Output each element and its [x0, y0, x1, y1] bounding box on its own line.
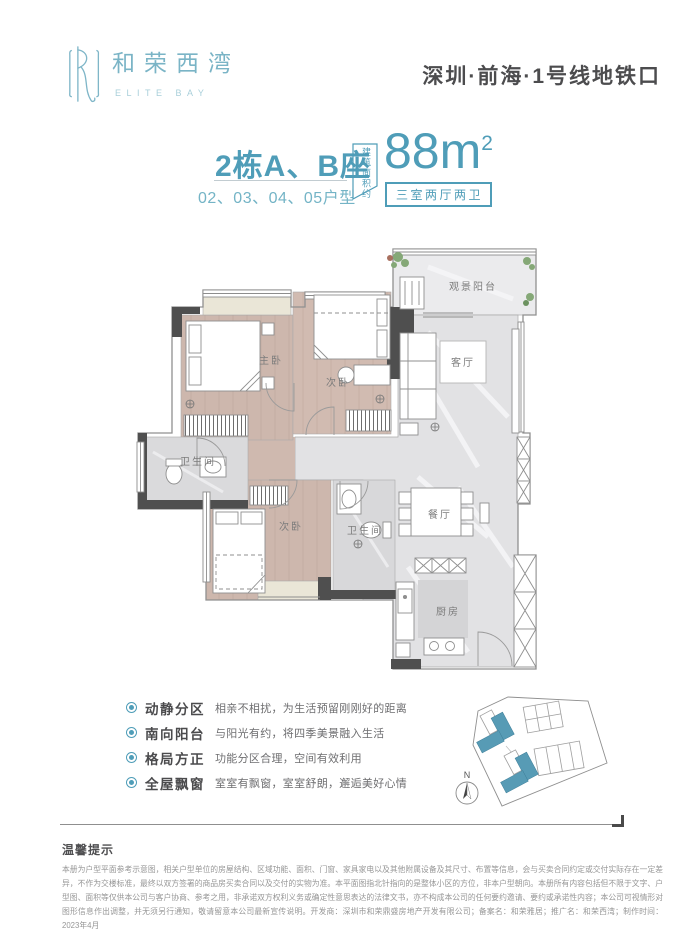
compass-icon — [456, 782, 478, 804]
feature-desc: 与阳光有约，将四季美景融入生活 — [215, 725, 385, 741]
building-title: 2栋A、B座 — [215, 141, 371, 185]
feature-label: 格局方正 — [145, 748, 207, 768]
brochure-page: 和荣西湾 ELITE BAY 深圳·前海·1号线地铁口 2栋A、B座 02、03… — [0, 0, 689, 935]
feature-row: 格局方正 功能分区合理，空间有效利用 — [126, 750, 407, 765]
feature-row: 南向阳台 与阳光有约，将四季美景融入生活 — [126, 725, 407, 740]
bullet-target-icon — [126, 752, 137, 763]
bullet-target-icon — [126, 702, 137, 713]
feature-label: 南向阳台 — [145, 723, 207, 743]
compass-label: N — [464, 770, 471, 780]
notice-section: 温馨提示 本册为户型平面参考示意图，相关户型单位的房屋结构、区域功能、面积、门窗… — [62, 841, 663, 933]
feature-list: 动静分区 相亲不相扰，为生活预留刚刚好的距离 南向阳台 与阳光有约，将四季美景融… — [126, 700, 407, 800]
floorplan-drawing: 主卧 次卧 观景阳台 客厅 卫生间 次卧 卫生间 餐厅 厨房 — [128, 237, 546, 685]
room-label-balcony: 观景阳台 — [449, 280, 497, 293]
bullet-target-icon — [126, 777, 137, 788]
area-number: 88 — [384, 123, 440, 179]
area-value: 88m2 — [384, 126, 493, 176]
area-exponent: 2 — [481, 132, 493, 155]
unit-numbers: 02、03、04、05户型 — [198, 184, 356, 208]
feature-desc: 相亲不相扰，为生活预留刚刚好的距离 — [215, 700, 407, 716]
brand-name-cn: 和荣西湾 — [112, 44, 240, 78]
title-underline — [214, 180, 347, 181]
room-label-living: 客厅 — [451, 356, 475, 369]
brand-name-block: 和荣西湾 ELITE BAY — [112, 44, 240, 98]
room-label-bath2: 卫生间 — [347, 524, 383, 537]
notice-title: 温馨提示 — [62, 841, 663, 858]
notice-body: 本册为户型平面参考示意图，相关户型单位的房屋结构、区域功能、面积、门窗、家具家电… — [62, 863, 663, 933]
layout-spec-box: 三室两厅两卫 — [385, 182, 492, 207]
floorplan: 主卧 次卧 观景阳台 客厅 卫生间 次卧 卫生间 餐厅 厨房 — [128, 237, 546, 690]
room-label-dining: 餐厅 — [428, 508, 452, 521]
feature-desc: 功能分区合理，空间有效利用 — [215, 750, 362, 766]
area-tag-label: 建筑面积约 — [360, 147, 373, 200]
feature-label: 动静分区 — [145, 698, 207, 718]
bullet-target-icon — [126, 727, 137, 738]
footer-divider — [60, 824, 612, 825]
siteplan-drawing: N — [448, 686, 623, 826]
brand-name-en: ELITE BAY — [115, 88, 240, 98]
room-label-bedroom3: 次卧 — [279, 520, 303, 533]
area-tag: 建筑面积约 — [352, 143, 378, 200]
room-label-master: 主卧 — [259, 354, 283, 367]
feature-row: 动静分区 相亲不相扰，为生活预留刚刚好的距离 — [126, 700, 407, 715]
feature-label: 全屋飘窗 — [145, 773, 207, 793]
divider-corner-mark — [612, 815, 624, 827]
project-location: 深圳·前海·1号线地铁口 — [422, 60, 661, 90]
room-label-kitchen: 厨房 — [436, 605, 460, 618]
area-unit: m — [440, 123, 482, 179]
brand-logo: 和荣西湾 ELITE BAY — [66, 44, 240, 104]
siteplan: N — [448, 686, 623, 831]
brand-monogram-icon — [66, 44, 100, 104]
feature-row: 全屋飘窗 室室有飘窗，室室舒朗，邂逅美好心情 — [126, 775, 407, 790]
feature-desc: 室室有飘窗，室室舒朗，邂逅美好心情 — [215, 775, 407, 791]
room-label-bedroom2: 次卧 — [326, 376, 350, 389]
room-label-bath1: 卫生间 — [180, 455, 216, 468]
